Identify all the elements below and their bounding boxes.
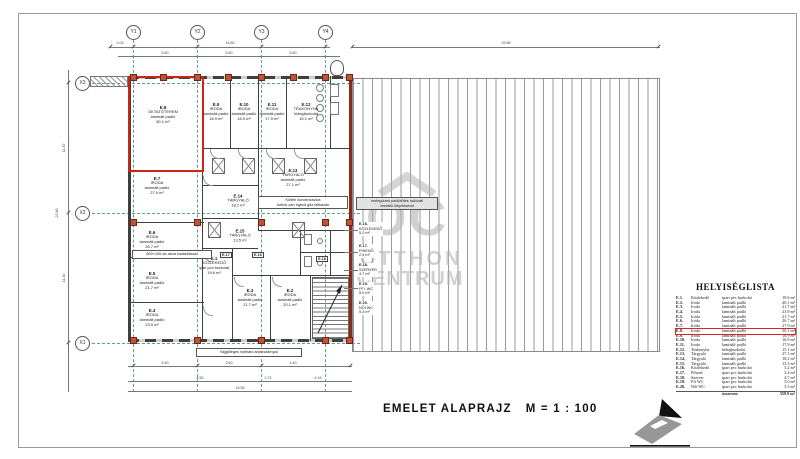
dimension-line xyxy=(128,391,352,392)
room-label: E.8 OKTATÓTEREM laminált padló 50.1 m² xyxy=(148,105,178,125)
row-floor: ipari pvc burkolat xyxy=(722,385,772,390)
room-list: HELYISÉGLISTA E.1. Közlekedő ipari pvc b… xyxy=(676,282,795,396)
room-list-row: E.20. Női WC ipari pvc burkolat 5.3 m² xyxy=(676,385,795,390)
room-area: 15.1 m² xyxy=(294,117,319,122)
heating-note: melegvizes padlófűtés hálózati vezeték k… xyxy=(356,197,438,210)
drawing-sheet: Y1 Y2 Y3 Y4 X3 X2 X1 2.00 16.80 29.56 5.… xyxy=(0,0,800,459)
drawing-title: EMELET ALAPRAJZM = 1 : 100 xyxy=(383,403,611,415)
leader-label: E.17. PIHENŐ 2.4 m² xyxy=(358,244,375,258)
column-marker xyxy=(130,74,137,81)
wall-segment xyxy=(270,275,271,341)
wall-segment xyxy=(202,248,258,249)
grid-bubble-y1: Y1 xyxy=(126,25,141,40)
room-label: E.11 IRODA laminált padló 17.9 m² xyxy=(260,102,285,122)
shaft-symbol xyxy=(242,158,255,174)
drawing-scale: M = 1 : 100 xyxy=(526,403,598,415)
leader-line xyxy=(344,230,358,231)
room-label: E.6 IRODA laminált padló 26.7 m² xyxy=(140,230,165,250)
kitchen-counter xyxy=(330,84,339,97)
dimension-text: 11.40 xyxy=(62,274,66,283)
column-marker xyxy=(346,74,353,81)
stairs-direction-arrow xyxy=(312,277,349,339)
grid-bubble-y3: Y3 xyxy=(254,25,269,40)
wall-segment xyxy=(202,218,258,219)
dimension-text: 2.73 xyxy=(265,376,272,380)
room-label: E.3 IRODA laminált padló 21.7 m² xyxy=(238,288,263,308)
column-marker xyxy=(130,337,137,344)
column-marker xyxy=(194,219,201,226)
room-area: 27.9 m² xyxy=(145,191,170,196)
exterior-wall-bottom xyxy=(128,339,352,342)
leader-area: 5.2 m² xyxy=(359,231,382,236)
room-area: 16.9 m² xyxy=(204,117,229,122)
room-tag: E.16 xyxy=(252,252,264,258)
dimension-text: 22.80 xyxy=(55,209,59,218)
wall-segment xyxy=(232,248,233,341)
room-list-total-row: összesen: 359.9 m² xyxy=(676,391,795,397)
leader-area: 4.7 m² xyxy=(359,272,377,277)
dimension-text: 3.60 xyxy=(226,361,233,365)
dimension-text: 5.60 xyxy=(162,51,169,55)
column-marker xyxy=(258,219,265,226)
leader-label: E.19. FFI. WC 5.0 m² xyxy=(358,282,374,296)
leader-line xyxy=(344,252,358,253)
neighbor-wall-stub xyxy=(90,76,128,87)
column-marker xyxy=(130,219,137,226)
room-label: E.5 IRODA laminált padló 21.7 m² xyxy=(140,271,165,291)
total-value: 359.9 m² xyxy=(772,392,795,397)
room-label: E.12 TEAKONYHA hidegburkolat 15.1 m² xyxy=(294,102,319,122)
boiler-note-line2: turbós zárt égésű gáz falikazán xyxy=(261,203,345,208)
total-spacer xyxy=(691,392,722,397)
dimension-line xyxy=(118,56,340,57)
kitchen-fixture xyxy=(316,94,324,102)
shaft-note-text: 800×100-as akna kialakítással xyxy=(135,252,209,257)
column-marker xyxy=(258,337,265,344)
room-label: E.9 IRODA laminált padló 16.9 m² xyxy=(204,102,229,122)
column-marker xyxy=(322,219,329,226)
wc-fixture xyxy=(304,234,312,245)
column-marker xyxy=(346,219,353,226)
room-area: 50.1 m² xyxy=(148,120,178,125)
wall-segment xyxy=(258,148,259,230)
column-marker xyxy=(322,74,329,81)
room-label: E.2 IRODA laminált padló 20.1 m² xyxy=(278,288,303,308)
room-area: 23.9 m² xyxy=(140,323,165,328)
wall-segment xyxy=(128,222,204,223)
window-note-text: függőleges nyitható ablakszárnyal xyxy=(199,350,299,355)
room-label: E.7 IRODA laminált padló 27.9 m² xyxy=(145,176,170,196)
column-marker xyxy=(194,337,201,344)
grid-line-x2 xyxy=(92,213,360,214)
shaft-symbol xyxy=(304,158,317,174)
wall-segment xyxy=(286,76,287,148)
dimension-text: 16.55 xyxy=(236,386,245,390)
shaft-note: 800×100-as akna kialakítással xyxy=(132,250,212,259)
dimension-text: 4.40 xyxy=(290,361,297,365)
dimension-text: 5.60 xyxy=(226,51,233,55)
wc-fixture xyxy=(304,256,312,267)
dimension-line xyxy=(68,70,69,392)
dimension-line xyxy=(110,47,330,48)
dimension-text: 8.55 xyxy=(197,376,204,380)
leader-area: 5.0 m² xyxy=(359,291,373,296)
dimension-line xyxy=(128,366,352,367)
column-marker xyxy=(290,74,297,81)
exterior-wall-right xyxy=(349,76,352,342)
room-label: E.1 KÖZLEKEDŐ ipari pvc burkolat 19.6 m² xyxy=(199,256,229,276)
dimension-text: 5.60 xyxy=(290,51,297,55)
grid-bubble-y4: Y4 xyxy=(318,25,333,40)
grid-bubble-x2: X2 xyxy=(75,206,90,221)
dimension-text: 16.80 xyxy=(226,41,235,45)
room-list-title: HELYISÉGLISTA xyxy=(676,282,795,292)
room-area: 27.1 m² xyxy=(281,183,306,188)
room-area: 17.9 m² xyxy=(260,117,285,122)
drawing-title-text: EMELET ALAPRAJZ xyxy=(383,403,512,415)
room-label: E.13 TÁRGYALÓ laminált padló 27.1 m² xyxy=(281,168,306,188)
leader-label: E.16. KÖZLEKEDŐ 5.2 m² xyxy=(358,222,383,236)
column-marker xyxy=(258,74,265,81)
wc-fixture xyxy=(317,238,323,244)
shaft-symbol xyxy=(208,222,221,238)
room-label: E.10 IRODA laminált padló 16.9 m² xyxy=(232,102,257,122)
wall-segment xyxy=(310,275,311,341)
row-area: 5.3 m² xyxy=(772,385,795,390)
dimension-text: 29.56 xyxy=(502,41,511,45)
grid-bubble-x1: X1 xyxy=(75,336,90,351)
room-area: 21.7 m² xyxy=(238,303,263,308)
company-logo xyxy=(628,396,692,448)
wall-segment xyxy=(258,230,352,231)
kitchen-fixture xyxy=(316,84,324,92)
room-area: 20.1 m² xyxy=(278,303,303,308)
grid-bubble-y2: Y2 xyxy=(190,25,205,40)
kitchen-counter xyxy=(330,102,339,115)
dimension-text: 2.00 xyxy=(117,41,124,45)
room-label: E.15 TÁRGYALÓ 13.5 m² xyxy=(229,229,251,244)
wall-segment xyxy=(128,302,204,303)
room-label: E.4 IRODA laminált padló 23.9 m² xyxy=(140,308,165,328)
leader-label: E.20. NŐI WC 5.3 m² xyxy=(358,301,374,315)
room-area: 13.5 m² xyxy=(229,239,251,244)
dimension-text: 11.40 xyxy=(62,144,66,153)
room-area: 21.7 m² xyxy=(140,286,165,291)
room-tag: E.17 xyxy=(220,252,232,258)
column-marker xyxy=(225,74,232,81)
room-area: 18.2 m² xyxy=(227,204,249,209)
room-label: E.14 TÁRGYALÓ 18.2 m² xyxy=(227,194,249,209)
dimension-text: 5.40 xyxy=(162,361,169,365)
room-tag: E.18 xyxy=(316,256,328,262)
dimension-line xyxy=(128,381,352,382)
boiler-note: Kültéri kondenzációs turbós zárt égésű g… xyxy=(258,196,348,209)
total-label: összesen: xyxy=(722,392,772,397)
column-marker xyxy=(160,74,167,81)
wall-segment xyxy=(202,148,352,149)
row-no: E.20. xyxy=(676,385,691,390)
shaft-symbol xyxy=(212,158,225,174)
vent-circle xyxy=(330,60,344,76)
dimension-text: 4.16 xyxy=(315,376,322,380)
dimension-line xyxy=(352,47,660,48)
leader-area: 5.3 m² xyxy=(359,310,373,315)
room-area: 19.6 m² xyxy=(199,271,229,276)
row-name: Női WC xyxy=(691,385,722,390)
wall-segment xyxy=(232,275,352,276)
grid-bubble-x3: X3 xyxy=(75,76,90,91)
column-marker xyxy=(194,74,201,81)
room-area: 16.9 m² xyxy=(232,117,257,122)
window-note: függőleges nyitható ablakszárnyal xyxy=(196,348,302,357)
leader-area: 2.4 m² xyxy=(359,253,374,258)
heating-note-line2: vezeték kiépítésével xyxy=(359,204,435,209)
leader-label: E.18. SZERVER 4.7 m² xyxy=(358,263,378,277)
